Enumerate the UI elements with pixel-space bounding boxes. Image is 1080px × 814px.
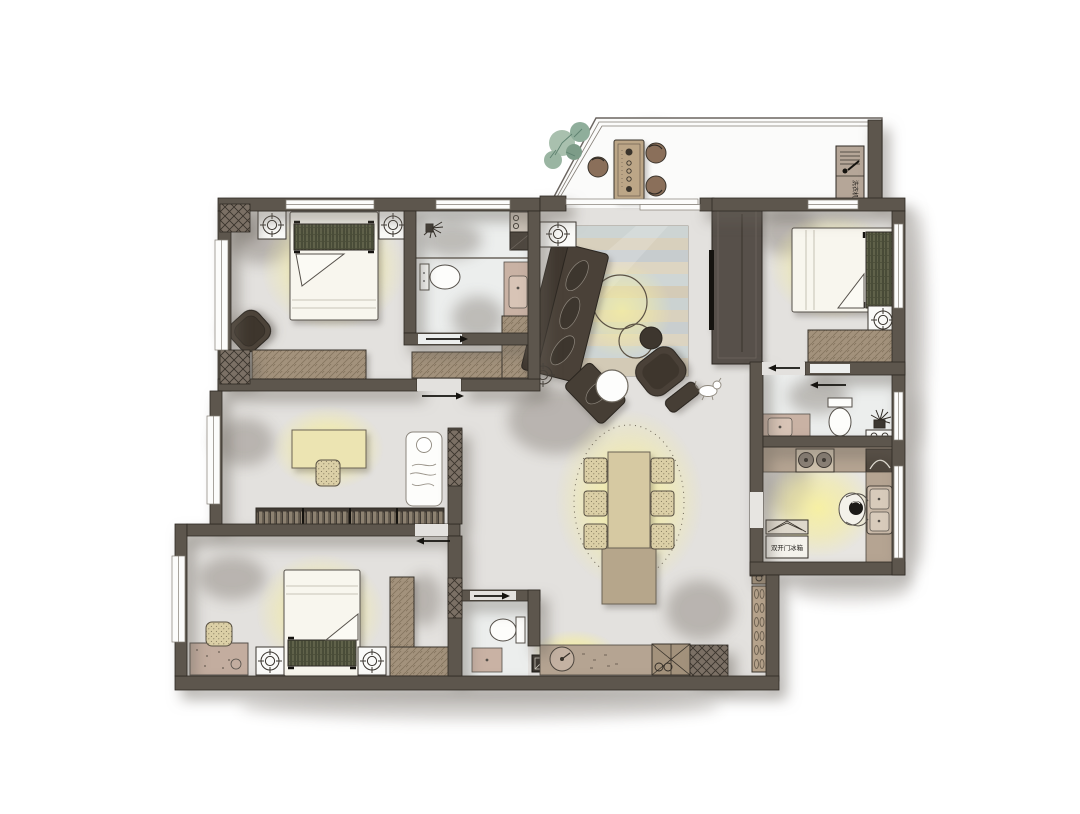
sideboard-island bbox=[602, 548, 656, 604]
floor-plan-canvas: 双开门冰箱 bbox=[0, 0, 1080, 814]
window bbox=[894, 392, 903, 440]
headboard-pillows bbox=[866, 232, 892, 308]
dining-table bbox=[608, 452, 650, 548]
daybed bbox=[406, 432, 442, 506]
window bbox=[894, 466, 903, 558]
window bbox=[808, 200, 858, 209]
fridge: 双开门冰箱 bbox=[766, 520, 808, 558]
tv-screen bbox=[709, 250, 714, 330]
round-side-table bbox=[596, 370, 628, 402]
bed bbox=[792, 228, 896, 312]
kitchen-door-gap bbox=[750, 492, 763, 528]
window bbox=[894, 224, 903, 308]
floor-plan-drawing: 双开门冰箱 bbox=[0, 0, 1080, 814]
window bbox=[286, 200, 374, 209]
master-door-gap bbox=[417, 379, 461, 391]
master-bed bbox=[290, 212, 378, 320]
bedroom-bench bbox=[252, 350, 366, 379]
window bbox=[215, 240, 228, 350]
washing-machine: 洗衣机 bbox=[836, 146, 864, 202]
shoe-cabinet bbox=[752, 586, 767, 672]
bath2-door-gap bbox=[810, 364, 850, 373]
window bbox=[207, 416, 220, 504]
toilet bbox=[828, 398, 852, 436]
headboard-pillows bbox=[294, 224, 374, 250]
desk-chair bbox=[316, 460, 340, 486]
fridge-label: 双开门冰箱 bbox=[771, 543, 804, 552]
hall-vanity-counter bbox=[540, 644, 690, 675]
balcony: 洗衣机 bbox=[544, 118, 882, 208]
window bbox=[172, 556, 185, 642]
bedroom-bench bbox=[808, 330, 896, 362]
hall-cabinet bbox=[652, 644, 690, 675]
toilet bbox=[420, 264, 460, 290]
window bbox=[436, 200, 510, 209]
throw-pillow bbox=[640, 327, 662, 349]
stove-icon bbox=[796, 449, 834, 472]
toilet bbox=[490, 617, 525, 643]
double-sink bbox=[867, 486, 892, 534]
third-bedroom bbox=[792, 228, 898, 362]
entry-corridor bbox=[752, 572, 767, 672]
bed bbox=[284, 570, 360, 676]
headboard-pillows bbox=[288, 640, 356, 666]
stool bbox=[206, 622, 232, 646]
balcony-table bbox=[614, 140, 644, 200]
corner-module bbox=[866, 449, 893, 472]
bedroom2-door-gap bbox=[415, 524, 448, 536]
ac-unit-icon bbox=[540, 222, 576, 247]
tv-partition-wardrobe bbox=[709, 202, 762, 364]
washing-machine-label: 洗衣机 bbox=[851, 180, 859, 198]
